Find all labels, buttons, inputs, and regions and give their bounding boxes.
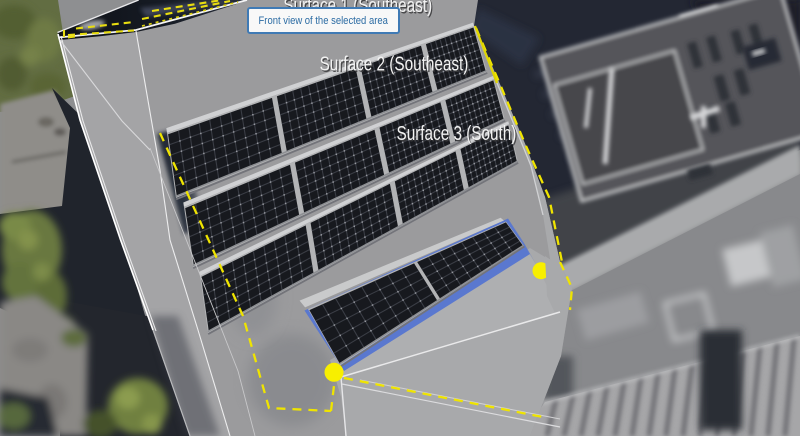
svg-text:Surface 2 (Southeast): Surface 2 (Southeast) (320, 52, 469, 74)
svg-text:Surface 3 (South): Surface 3 (South) (397, 122, 517, 144)
